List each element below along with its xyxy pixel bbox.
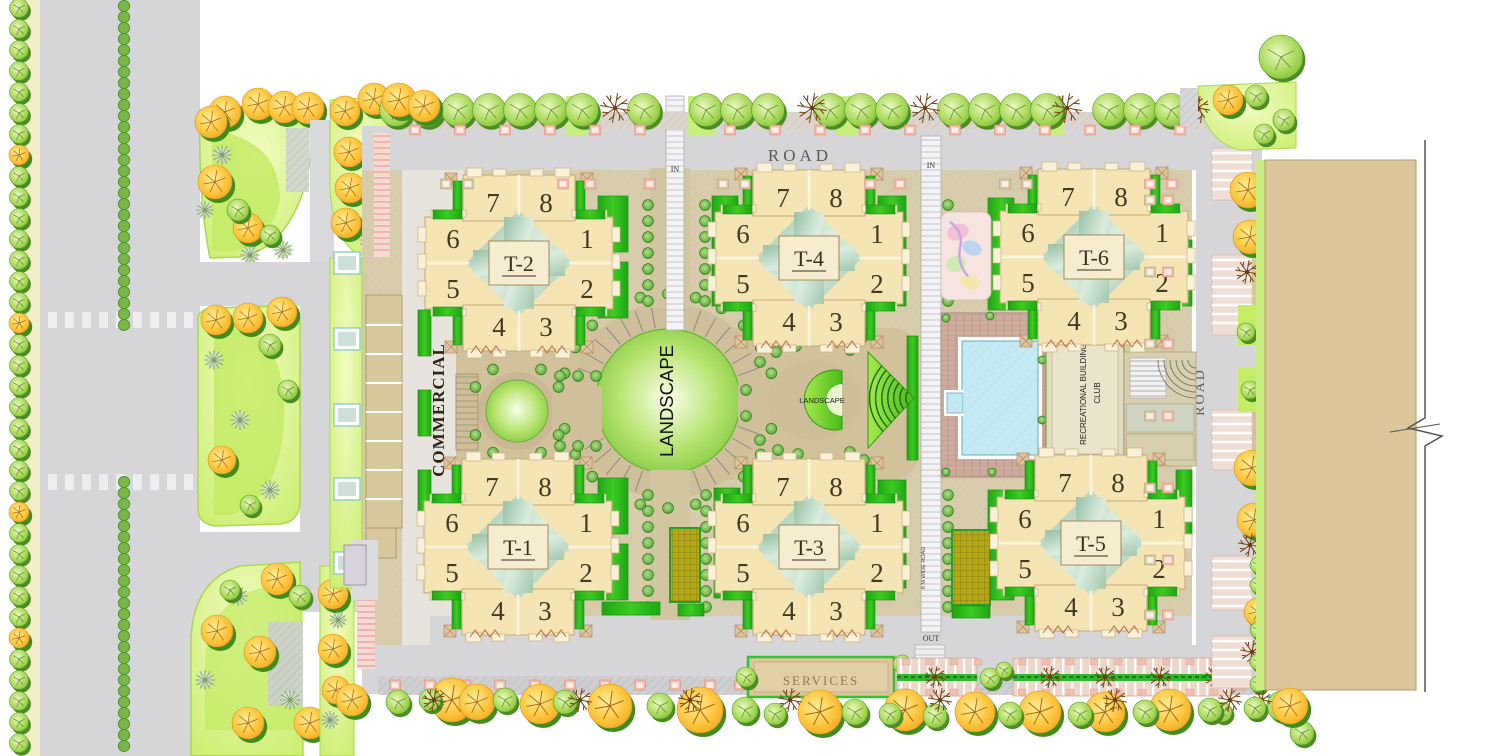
svg-text:CLUB: CLUB (1093, 382, 1102, 403)
svg-text:LANDSCAPE: LANDSCAPE (799, 396, 844, 405)
svg-text:IN: IN (671, 165, 680, 174)
svg-text:T-2: T-2 (504, 251, 534, 276)
svg-text:RECREATIONAL BUILDING /: RECREATIONAL BUILDING / (1079, 338, 1088, 445)
svg-text:T-5: T-5 (1076, 531, 1106, 556)
svg-text:T-1: T-1 (503, 535, 533, 560)
svg-text:IN: IN (927, 161, 936, 170)
svg-text:COMMERCIAL: COMMERCIAL (429, 343, 448, 477)
svg-text:T-3: T-3 (794, 535, 824, 560)
svg-text:LANDSCAPE: LANDSCAPE (656, 345, 677, 457)
svg-text:OUT: OUT (923, 634, 940, 643)
svg-text:T-6: T-6 (1079, 245, 1109, 270)
svg-text:T-4: T-4 (794, 246, 824, 271)
svg-text:ROAD: ROAD (768, 146, 832, 165)
svg-text:8 M WIDE ROAD: 8 M WIDE ROAD (921, 547, 927, 590)
svg-text:SERVICES: SERVICES (783, 673, 859, 688)
